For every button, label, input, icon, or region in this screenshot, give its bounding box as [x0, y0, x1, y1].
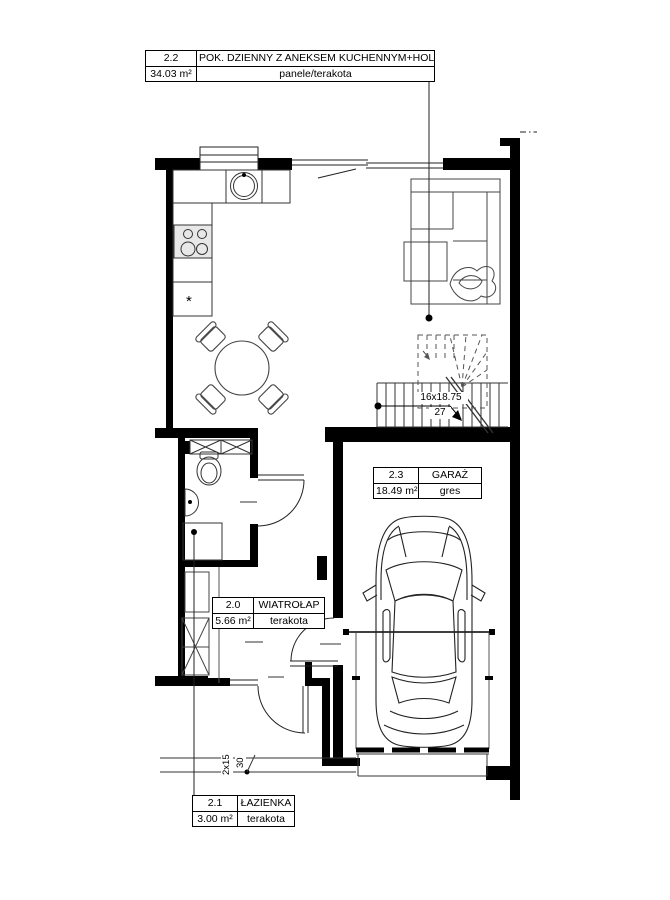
entry-sidelight-icon — [230, 680, 258, 685]
room-name: WIATROŁAP — [254, 598, 324, 613]
garage — [343, 516, 495, 776]
leader-bathroom — [191, 529, 197, 795]
entry-steps-riser-dimension: 2x15 — [221, 745, 233, 775]
kitchen-sink-icon — [231, 173, 258, 200]
room-label-vestibule: 2.0 WIATROŁAP 5.66 m² terakota — [212, 597, 325, 629]
entry-steps-tread-dimension: 30 — [235, 752, 246, 768]
coffee-table — [404, 242, 447, 281]
driveway-apron — [358, 754, 487, 776]
room-name: POK. DZIENNY Z ANEKSEM KUCHENNYM+HOLL — [197, 51, 434, 66]
toilet-icon — [197, 452, 221, 485]
cistern-shelf-icon — [190, 440, 252, 454]
wardrobe-icon — [182, 618, 209, 675]
floor-plan-canvas: * — [0, 0, 670, 900]
cabinet-icon — [185, 572, 209, 612]
room-number: 2.3 — [374, 468, 419, 483]
kitchen-counter — [173, 170, 290, 203]
freezer-symbol: * — [186, 293, 192, 310]
washbasin-icon — [185, 489, 199, 516]
room-number: 2.2 — [146, 51, 197, 66]
kitchen-counter-left — [173, 203, 212, 316]
kitchen: * — [173, 170, 290, 316]
dining-table — [215, 341, 269, 395]
stairs-width-dimension: 27 — [429, 407, 451, 419]
room-label-living: 2.2 POK. DZIENNY Z ANEKSEM KUCHENNYM+HOL… — [145, 50, 435, 82]
room-area: 34.03 m² — [146, 67, 197, 82]
room-number: 2.1 — [193, 796, 238, 811]
garage-door-icon — [356, 750, 489, 754]
room-area: 5.66 m² — [213, 614, 254, 629]
room-number: 2.0 — [213, 598, 254, 613]
room-floor: gres — [419, 484, 481, 499]
room-floor: panele/terakota — [197, 67, 434, 82]
stair-break-line — [446, 377, 493, 433]
room-area: 3.00 m² — [193, 812, 238, 827]
stair-treads — [386, 383, 499, 427]
room-name: GARAŻ — [419, 468, 481, 483]
room-name: ŁAZIENKA — [238, 796, 294, 811]
room-area: 18.49 m² — [374, 484, 419, 499]
leader-living-room — [426, 82, 433, 322]
kitchen-window-icon — [200, 147, 258, 170]
plant-icon — [450, 266, 496, 300]
front-door-icon — [258, 686, 308, 733]
room-floor: terakota — [254, 614, 324, 629]
stairs-dimension: 16x18.75 — [414, 392, 468, 404]
bathroom-door-icon — [258, 475, 304, 526]
washer-icon — [183, 523, 222, 560]
room-label-bathroom: 2.1 ŁAZIENKA 3.00 m² terakota — [192, 795, 295, 827]
dining-set — [195, 321, 290, 416]
room-floor: terakota — [238, 812, 294, 827]
sofa-set — [404, 179, 500, 304]
stove-icon — [174, 225, 212, 258]
bathroom — [183, 440, 252, 560]
room-label-garage: 2.3 GARAŻ 18.49 m² gres — [373, 467, 482, 499]
floor-plan-drawing: * — [0, 0, 670, 900]
terrace-sliding-door-icon — [292, 160, 443, 178]
